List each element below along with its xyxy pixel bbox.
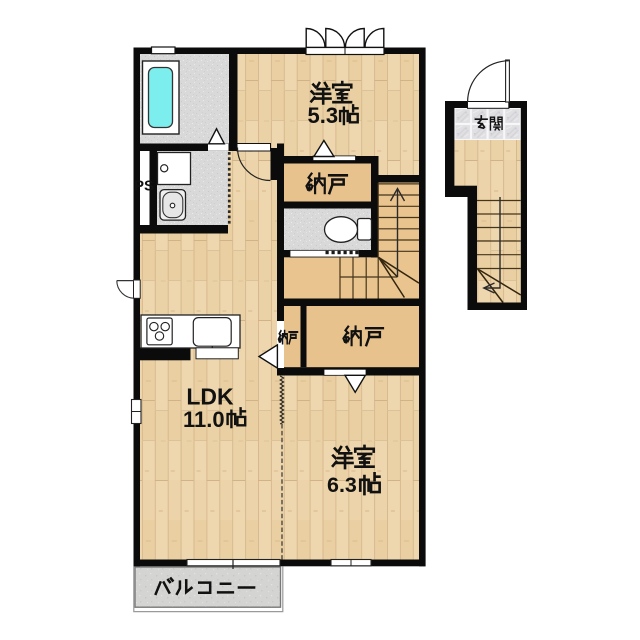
svg-text:PS: PS [134,178,154,195]
svg-text:11.0: 11.0 [183,407,225,432]
svg-text:5.3: 5.3 [308,103,339,128]
svg-text:LDK: LDK [186,384,234,410]
svg-text:6.3: 6.3 [327,473,357,497]
